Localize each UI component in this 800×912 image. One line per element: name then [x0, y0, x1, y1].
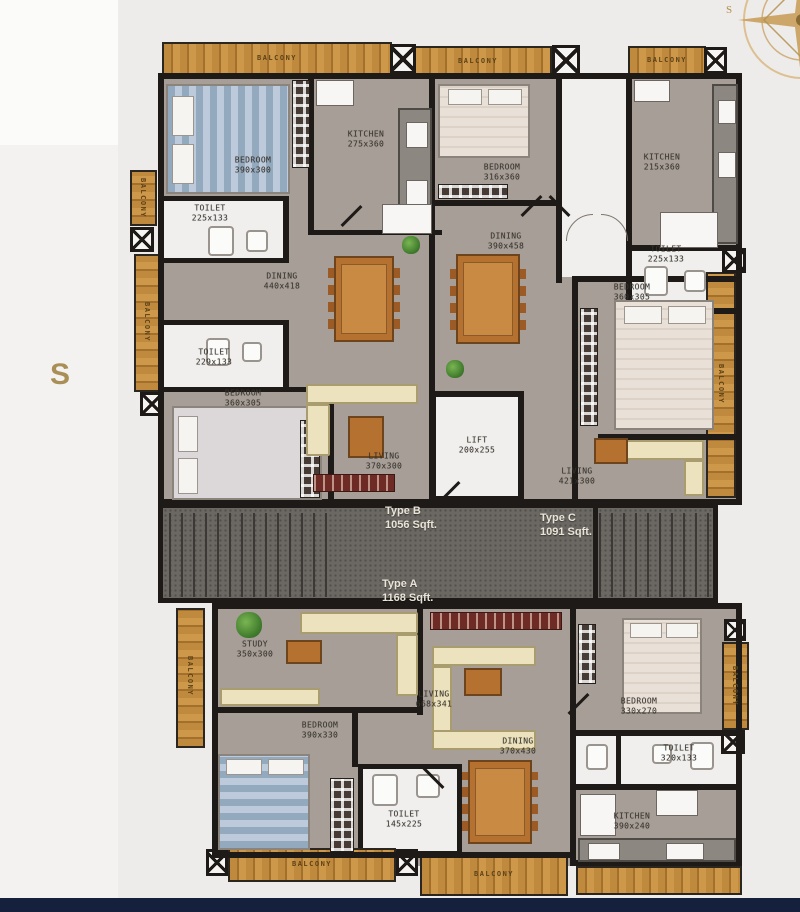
pillow — [172, 144, 194, 184]
sofa — [684, 460, 704, 496]
window-box — [552, 45, 580, 76]
bed — [218, 754, 310, 850]
pillow — [666, 623, 698, 638]
window-box — [130, 227, 154, 252]
room-label-bedroom-tc: BEDROOM316x360 — [484, 163, 521, 184]
sink — [406, 122, 428, 148]
wall — [158, 320, 288, 325]
kitchen-counter — [578, 838, 736, 862]
wall — [593, 508, 598, 598]
wash-basin — [246, 230, 268, 252]
foyer-floor — [562, 79, 626, 277]
window-box — [722, 248, 746, 273]
balcony-kitchen-deck — [576, 866, 742, 895]
stair-treads-left — [169, 513, 337, 597]
room-label-toilet-tr: TOILET225x133 — [648, 245, 685, 266]
coffee-table — [594, 438, 628, 464]
room-label-bedroom-br: BEDROOM330x270 — [621, 697, 658, 718]
pillow — [668, 306, 706, 324]
unit-label-type-c: Type C1091 Sqft. — [540, 512, 592, 540]
room-label-kitchen-br: KITCHEN390x240 — [614, 812, 651, 833]
room-label-toilet-tl: TOILET225x133 — [192, 204, 229, 225]
window-box — [704, 47, 727, 74]
room-label-living-l: LIVING370x300 — [366, 452, 403, 473]
pillow — [226, 759, 262, 775]
balcony-label: BALCONY — [458, 57, 498, 65]
kitchen-unit — [382, 204, 432, 234]
balcony-label: BALCONY — [717, 364, 725, 404]
wash-basin — [586, 744, 608, 770]
fridge — [316, 80, 354, 106]
wardrobe — [330, 778, 354, 852]
wash-basin — [242, 342, 262, 362]
bed — [438, 84, 530, 158]
tv-unit — [430, 612, 562, 630]
room-label-study: STUDY350x300 — [237, 640, 274, 661]
coffee-table — [286, 640, 322, 664]
room-label-living-r: LIVING421x300 — [559, 467, 596, 488]
floor-plan-page: S S — [0, 0, 800, 912]
balcony-label: BALCONY — [474, 870, 514, 878]
sofa — [306, 384, 418, 404]
pillow — [172, 96, 194, 136]
dining-table — [468, 760, 532, 844]
room-label-dining-c: DINING390x458 — [488, 232, 525, 253]
compass-letter: S — [726, 4, 732, 16]
toilet-wc — [208, 226, 234, 256]
wall — [352, 707, 358, 767]
pillow — [178, 458, 198, 494]
wardrobe — [438, 184, 508, 199]
balcony-label: BALCONY — [647, 56, 687, 64]
unit-label-type-a: Type A1168 Sqft. — [382, 578, 433, 606]
dining-table — [334, 256, 394, 342]
wall — [212, 603, 742, 609]
wall — [158, 73, 742, 79]
kitchen-unit — [580, 794, 616, 836]
dining-table — [456, 254, 520, 344]
room-label-dining-tl: DINING440x418 — [264, 272, 301, 293]
wall — [616, 730, 621, 788]
stove — [718, 152, 736, 178]
room-label-lift: LIFT200x255 — [459, 436, 496, 457]
wall — [576, 730, 736, 736]
room-label-kitchen-tr: KITCHEN215x360 — [644, 153, 681, 174]
room-label-toilet-br: TOILET320x133 — [661, 744, 698, 765]
tv-unit — [313, 474, 395, 492]
stove — [666, 843, 704, 860]
balcony-label: BALCONY — [731, 666, 739, 706]
wall — [283, 320, 289, 392]
sofa — [432, 646, 536, 666]
coffee-table — [464, 668, 502, 696]
room-label-bedroom-tl: BEDROOM390x300 — [235, 156, 272, 177]
window-box — [724, 619, 746, 641]
wall — [158, 196, 288, 201]
balcony-label: BALCONY — [292, 860, 332, 868]
wall — [283, 196, 289, 262]
pillow — [624, 306, 662, 324]
bed — [166, 84, 290, 194]
sofa — [300, 612, 418, 634]
table-top — [341, 264, 387, 334]
wall — [158, 258, 289, 263]
wardrobe — [292, 80, 310, 168]
side-letter: S — [50, 358, 70, 392]
room-label-bedroom-l: BEDROOM360x305 — [225, 389, 262, 410]
pillow — [630, 623, 662, 638]
wall — [158, 73, 164, 505]
table-top — [475, 768, 525, 836]
fridge — [656, 790, 698, 816]
sofa — [306, 404, 330, 456]
sink — [588, 843, 620, 860]
table-top — [463, 262, 513, 336]
plant — [446, 360, 464, 378]
sink — [718, 100, 736, 124]
wall — [212, 707, 423, 713]
window-box — [390, 44, 416, 74]
staircase-block — [158, 503, 718, 603]
pillow — [268, 759, 304, 775]
wash-basin — [684, 270, 706, 292]
pillow — [178, 416, 198, 452]
balcony-label: BALCONY — [143, 302, 151, 342]
wardrobe — [578, 624, 596, 684]
kitchen-unit — [660, 212, 718, 248]
pillow — [488, 89, 522, 105]
room-label-toilet-l2: TOILET229x133 — [196, 348, 233, 369]
room-label-kitchen-tl: KITCHEN275x360 — [348, 130, 385, 151]
wall — [212, 852, 576, 858]
plant — [402, 236, 420, 254]
left-panel-top — [0, 0, 118, 145]
plant — [236, 612, 262, 638]
room-label-toilet-b: TOILET145x225 — [386, 810, 423, 831]
bed — [614, 300, 714, 430]
room-label-bedroom-bl: BEDROOM390x330 — [302, 721, 339, 742]
balcony-label: BALCONY — [257, 54, 297, 62]
bottom-bar — [0, 898, 800, 912]
wardrobe — [580, 308, 598, 426]
fridge — [634, 80, 670, 102]
pillow — [448, 89, 482, 105]
room-label-living-b: LIVING668x341 — [416, 690, 453, 711]
room-label-bedroom-r: BEDROOM360x305 — [614, 283, 651, 304]
tv-bench — [220, 688, 320, 706]
room-label-dining-b: DINING370x430 — [500, 737, 537, 758]
unit-label-type-b: Type B1056 Sqft. — [385, 505, 437, 533]
stair-treads-right — [599, 513, 713, 597]
toilet-wc — [372, 774, 398, 806]
balcony-label: BALCONY — [139, 178, 147, 218]
wall — [736, 603, 742, 866]
sofa — [396, 634, 418, 696]
wash-basin — [416, 774, 440, 798]
wall — [556, 73, 562, 283]
balcony-label: BALCONY — [186, 656, 194, 696]
